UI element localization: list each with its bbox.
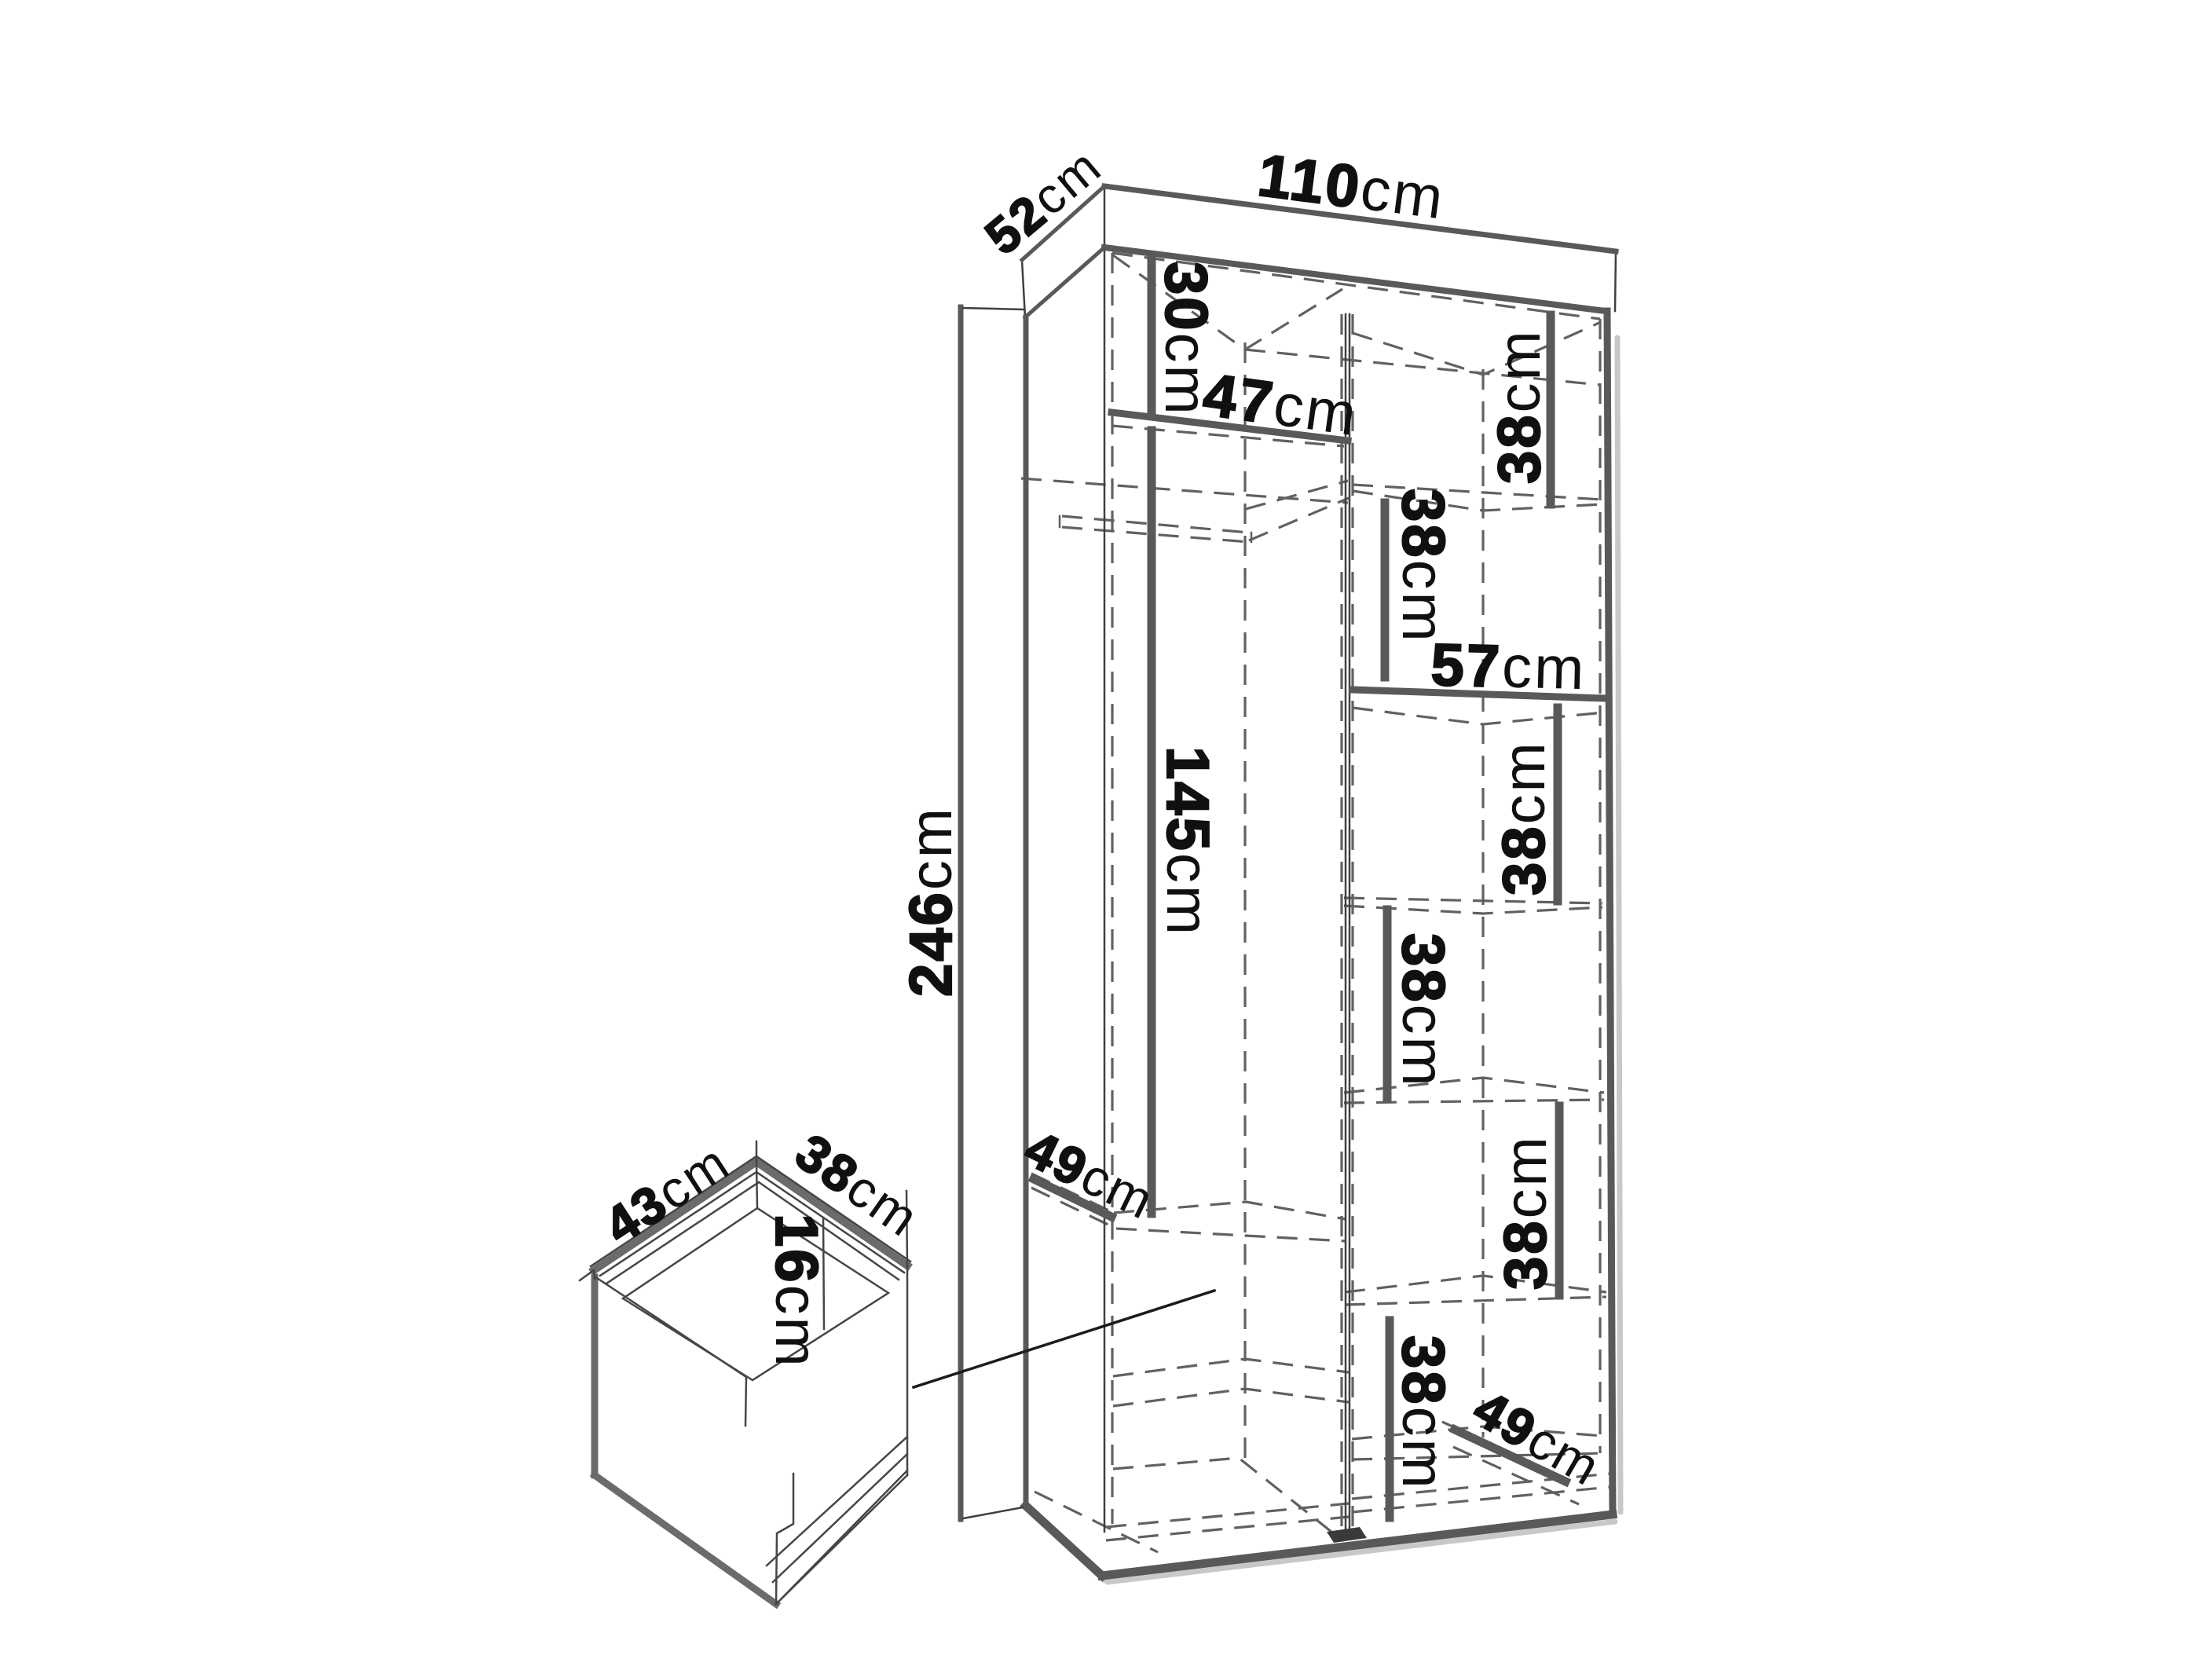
svg-text:52cm: 52cm	[975, 137, 1112, 265]
svg-text:49cm: 49cm	[1016, 1119, 1164, 1231]
svg-text:145cm: 145cm	[1154, 746, 1221, 937]
svg-text:38cm: 38cm	[1491, 740, 1558, 895]
svg-text:16cm: 16cm	[763, 1214, 829, 1369]
svg-text:110cm: 110cm	[1254, 142, 1449, 233]
svg-text:38cm: 38cm	[1390, 933, 1456, 1089]
svg-text:38cm: 38cm	[1390, 489, 1456, 644]
svg-text:49cm: 49cm	[1464, 1379, 1611, 1497]
svg-text:246cm: 246cm	[898, 806, 965, 997]
svg-text:43cm: 43cm	[594, 1132, 740, 1255]
svg-text:38cm: 38cm	[1492, 1134, 1559, 1290]
svg-text:38cm: 38cm	[1390, 1335, 1456, 1491]
svg-text:38cm: 38cm	[1486, 328, 1553, 484]
